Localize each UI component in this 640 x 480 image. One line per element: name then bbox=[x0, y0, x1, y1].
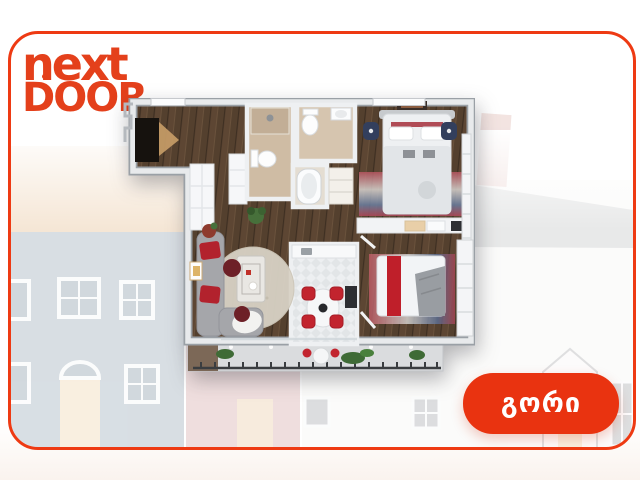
logo-doorknob-dot bbox=[42, 74, 47, 79]
bathroom-shower bbox=[247, 105, 293, 199]
bathroom-tub bbox=[293, 165, 353, 207]
page-background: next DOOR bbox=[0, 0, 640, 480]
listing-card[interactable]: next DOOR bbox=[8, 31, 636, 450]
city-button-label: გორი bbox=[501, 388, 581, 419]
kitchen-dining bbox=[291, 244, 357, 344]
floorplan-render bbox=[121, 98, 475, 375]
city-button[interactable]: გორი bbox=[463, 373, 619, 434]
bathroom-wc bbox=[297, 105, 355, 161]
master-bedroom bbox=[357, 101, 469, 248]
